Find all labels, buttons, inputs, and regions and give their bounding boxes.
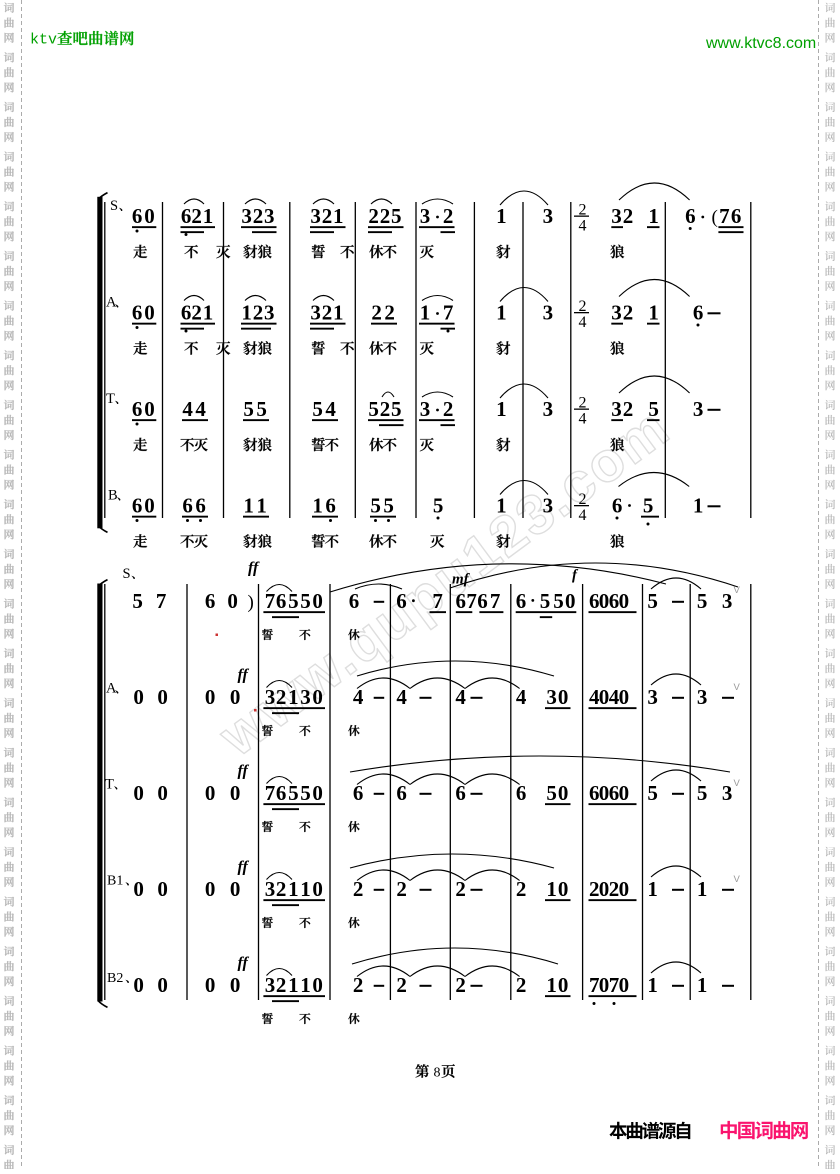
svg-text:3: 3	[420, 397, 431, 421]
svg-text:3: 3	[611, 204, 622, 228]
svg-text:5: 5	[648, 397, 659, 421]
svg-text:5: 5	[697, 781, 708, 805]
svg-text:6: 6	[205, 589, 216, 613]
svg-text:7: 7	[466, 589, 477, 613]
svg-text:5: 5	[288, 781, 299, 805]
svg-text:0: 0	[558, 685, 569, 709]
svg-text:1: 1	[546, 877, 557, 901]
svg-text:4: 4	[516, 685, 527, 709]
svg-text:A: A	[106, 295, 117, 311]
svg-text:4: 4	[325, 397, 336, 421]
svg-text:1: 1	[288, 877, 299, 901]
svg-text:5: 5	[553, 589, 564, 613]
svg-text:S: S	[123, 566, 131, 582]
svg-text:3: 3	[543, 494, 554, 518]
svg-text:5: 5	[391, 204, 402, 228]
svg-text:0: 0	[227, 589, 238, 613]
svg-text:0: 0	[312, 589, 323, 613]
svg-text:6: 6	[349, 589, 360, 613]
svg-text:3: 3	[697, 685, 708, 709]
svg-text:3: 3	[722, 589, 733, 613]
svg-text:7: 7	[265, 589, 276, 613]
svg-text:0: 0	[144, 204, 155, 228]
svg-text:3: 3	[264, 204, 275, 228]
svg-text:1: 1	[300, 973, 311, 997]
svg-text:3: 3	[543, 204, 554, 228]
svg-text:www.ktvc8.com: www.ktvc8.com	[705, 35, 816, 52]
svg-text:4: 4	[195, 397, 206, 421]
svg-text:6: 6	[325, 494, 336, 518]
svg-text:2: 2	[623, 397, 634, 421]
svg-text:A: A	[106, 681, 117, 697]
svg-text:6: 6	[195, 494, 206, 518]
svg-text:4: 4	[396, 685, 407, 709]
svg-text:T: T	[106, 391, 115, 407]
svg-text:0: 0	[599, 589, 610, 613]
svg-text:V: V	[734, 778, 741, 789]
svg-text:0: 0	[157, 877, 168, 901]
svg-text:6: 6	[353, 781, 364, 805]
svg-text:3: 3	[693, 397, 704, 421]
svg-text:2: 2	[455, 877, 466, 901]
svg-text:2: 2	[396, 877, 407, 901]
svg-text:1: 1	[697, 877, 708, 901]
svg-text:ff: ff	[238, 667, 250, 684]
svg-text:1: 1	[333, 204, 344, 228]
svg-text:6: 6	[612, 494, 623, 518]
svg-text:2: 2	[276, 973, 287, 997]
svg-text:6: 6	[276, 589, 287, 613]
svg-text:0: 0	[312, 781, 323, 805]
svg-text:ff: ff	[238, 763, 250, 780]
svg-text:1: 1	[243, 494, 254, 518]
svg-text:0: 0	[558, 781, 569, 805]
svg-text:6: 6	[731, 204, 742, 228]
svg-text:1: 1	[496, 397, 507, 421]
svg-text:2: 2	[380, 204, 391, 228]
svg-text:5: 5	[647, 589, 658, 613]
svg-text:1: 1	[647, 973, 658, 997]
svg-text:7: 7	[490, 589, 501, 613]
svg-text:1: 1	[420, 301, 431, 325]
svg-text:0: 0	[205, 877, 216, 901]
svg-text:1: 1	[697, 973, 708, 997]
svg-text:2: 2	[623, 204, 634, 228]
svg-text:4: 4	[579, 507, 587, 524]
svg-text:6: 6	[276, 781, 287, 805]
svg-text:5: 5	[300, 589, 311, 613]
svg-text:0: 0	[619, 589, 630, 613]
svg-text:2: 2	[322, 301, 333, 325]
svg-text:1: 1	[288, 973, 299, 997]
svg-text:3: 3	[265, 877, 276, 901]
svg-text:1: 1	[256, 494, 267, 518]
svg-text:0: 0	[157, 973, 168, 997]
svg-text:0: 0	[312, 973, 323, 997]
svg-text:1: 1	[546, 973, 557, 997]
svg-text:6: 6	[182, 494, 193, 518]
svg-text:6: 6	[181, 204, 192, 228]
svg-text:V: V	[734, 585, 741, 596]
svg-text:3: 3	[310, 204, 321, 228]
svg-text:3: 3	[647, 685, 658, 709]
svg-text:5: 5	[288, 589, 299, 613]
svg-text:2: 2	[623, 301, 634, 325]
svg-text:6: 6	[685, 204, 696, 228]
svg-text:0: 0	[599, 685, 610, 709]
svg-text:mf: mf	[452, 572, 471, 588]
svg-text:2: 2	[253, 301, 264, 325]
svg-text:3: 3	[543, 301, 554, 325]
svg-text:0: 0	[558, 973, 569, 997]
svg-text:0: 0	[565, 589, 576, 613]
svg-text:0: 0	[144, 301, 155, 325]
svg-text:V: V	[734, 874, 741, 885]
svg-text:5: 5	[368, 397, 379, 421]
svg-text:0: 0	[230, 685, 241, 709]
svg-text:ff: ff	[248, 560, 260, 577]
svg-text:2: 2	[380, 397, 391, 421]
svg-text:0: 0	[133, 877, 144, 901]
svg-text:0: 0	[157, 685, 168, 709]
svg-text:1: 1	[333, 301, 344, 325]
svg-text:0: 0	[144, 397, 155, 421]
svg-text:4: 4	[579, 411, 587, 428]
svg-text:1: 1	[648, 204, 659, 228]
svg-text:7: 7	[156, 589, 167, 613]
svg-text:5: 5	[697, 589, 708, 613]
svg-text:6: 6	[132, 397, 143, 421]
svg-text:0: 0	[619, 781, 630, 805]
svg-text:6: 6	[396, 589, 407, 613]
svg-text:3: 3	[420, 204, 431, 228]
svg-text:5: 5	[647, 781, 658, 805]
svg-text:2: 2	[353, 973, 364, 997]
svg-text:6: 6	[693, 301, 704, 325]
svg-text:8: 8	[434, 1066, 441, 1081]
svg-text:6: 6	[132, 301, 143, 325]
svg-text:1: 1	[647, 877, 658, 901]
svg-text:2: 2	[368, 204, 379, 228]
svg-text:0: 0	[599, 781, 610, 805]
svg-text:3: 3	[265, 685, 276, 709]
svg-text:6: 6	[456, 589, 467, 613]
svg-text:2: 2	[191, 204, 202, 228]
svg-text:2: 2	[443, 204, 454, 228]
svg-text:3: 3	[546, 685, 557, 709]
svg-text:1: 1	[203, 204, 214, 228]
svg-text:0: 0	[619, 877, 630, 901]
svg-text:5: 5	[383, 494, 394, 518]
svg-text:7: 7	[719, 204, 730, 228]
svg-text:0: 0	[599, 973, 610, 997]
svg-text:0: 0	[558, 877, 569, 901]
svg-text:1: 1	[496, 204, 507, 228]
svg-text:2: 2	[455, 973, 466, 997]
svg-text:4: 4	[182, 397, 193, 421]
svg-text:2: 2	[516, 973, 527, 997]
svg-text:4: 4	[353, 685, 364, 709]
svg-text:6: 6	[516, 781, 527, 805]
svg-text:5: 5	[243, 397, 254, 421]
svg-text:2: 2	[396, 973, 407, 997]
svg-text:0: 0	[133, 973, 144, 997]
svg-text:0: 0	[205, 685, 216, 709]
svg-text:T: T	[105, 777, 114, 793]
svg-text:2: 2	[353, 877, 364, 901]
svg-text:ff: ff	[238, 859, 250, 876]
svg-text:1: 1	[300, 877, 311, 901]
svg-text:5: 5	[546, 781, 557, 805]
svg-text:1: 1	[693, 494, 704, 518]
svg-text:7: 7	[443, 301, 454, 325]
svg-text:0: 0	[230, 973, 241, 997]
svg-text:7: 7	[432, 589, 443, 613]
svg-text:5: 5	[132, 589, 143, 613]
svg-text:6: 6	[396, 781, 407, 805]
svg-text:5: 5	[643, 494, 654, 518]
svg-text:1: 1	[648, 301, 659, 325]
svg-text:0: 0	[599, 877, 610, 901]
svg-text:S: S	[110, 198, 118, 214]
svg-text:B1: B1	[107, 874, 123, 889]
svg-text:3: 3	[265, 973, 276, 997]
svg-text:6: 6	[455, 781, 466, 805]
svg-text:5: 5	[540, 589, 551, 613]
svg-text:1: 1	[241, 301, 252, 325]
svg-text:3: 3	[611, 301, 622, 325]
svg-text:0: 0	[230, 781, 241, 805]
svg-text:5: 5	[300, 781, 311, 805]
svg-text:5: 5	[391, 397, 402, 421]
svg-text:2: 2	[322, 204, 333, 228]
svg-text:B: B	[108, 488, 118, 504]
svg-text:6: 6	[132, 204, 143, 228]
svg-text:V: V	[734, 682, 741, 693]
svg-text:0: 0	[619, 973, 630, 997]
svg-text:2: 2	[516, 877, 527, 901]
svg-text:7: 7	[265, 781, 276, 805]
svg-text:3: 3	[722, 781, 733, 805]
svg-text:ff: ff	[238, 955, 250, 972]
svg-text:6: 6	[181, 301, 192, 325]
svg-text:5: 5	[433, 494, 444, 518]
svg-text:B2: B2	[107, 971, 123, 986]
svg-text:3: 3	[310, 301, 321, 325]
svg-text:3: 3	[611, 397, 622, 421]
svg-text:1: 1	[203, 301, 214, 325]
svg-text:3: 3	[264, 301, 275, 325]
svg-text:0: 0	[133, 685, 144, 709]
svg-text:2: 2	[384, 301, 395, 325]
svg-text:2: 2	[276, 685, 287, 709]
svg-text:2: 2	[371, 301, 382, 325]
svg-text:6: 6	[516, 589, 527, 613]
svg-text:2: 2	[276, 877, 287, 901]
svg-text:5: 5	[256, 397, 267, 421]
svg-text:1: 1	[496, 301, 507, 325]
svg-text:3: 3	[300, 685, 311, 709]
svg-text:0: 0	[157, 781, 168, 805]
svg-text:6: 6	[477, 589, 488, 613]
svg-text:0: 0	[619, 685, 630, 709]
svg-text:4: 4	[579, 314, 587, 331]
svg-text:0: 0	[312, 685, 323, 709]
svg-text:4: 4	[455, 685, 466, 709]
svg-text:(: (	[712, 207, 718, 228]
svg-text:1: 1	[312, 494, 323, 518]
svg-text:ktv: ktv	[30, 32, 57, 49]
svg-text:5: 5	[370, 494, 381, 518]
svg-text:0: 0	[144, 494, 155, 518]
svg-text:6: 6	[132, 494, 143, 518]
svg-text:2: 2	[191, 301, 202, 325]
svg-text:3: 3	[543, 397, 554, 421]
svg-text:2: 2	[443, 397, 454, 421]
svg-text:2: 2	[253, 204, 264, 228]
svg-text:3: 3	[241, 204, 252, 228]
svg-text:0: 0	[133, 781, 144, 805]
svg-text:): )	[248, 592, 254, 613]
svg-text:1: 1	[288, 685, 299, 709]
svg-text:5: 5	[312, 397, 323, 421]
svg-text:0: 0	[230, 877, 241, 901]
svg-text:0: 0	[205, 781, 216, 805]
svg-text:4: 4	[579, 218, 587, 235]
svg-text:1: 1	[496, 494, 507, 518]
svg-text:0: 0	[312, 877, 323, 901]
svg-text:0: 0	[205, 973, 216, 997]
